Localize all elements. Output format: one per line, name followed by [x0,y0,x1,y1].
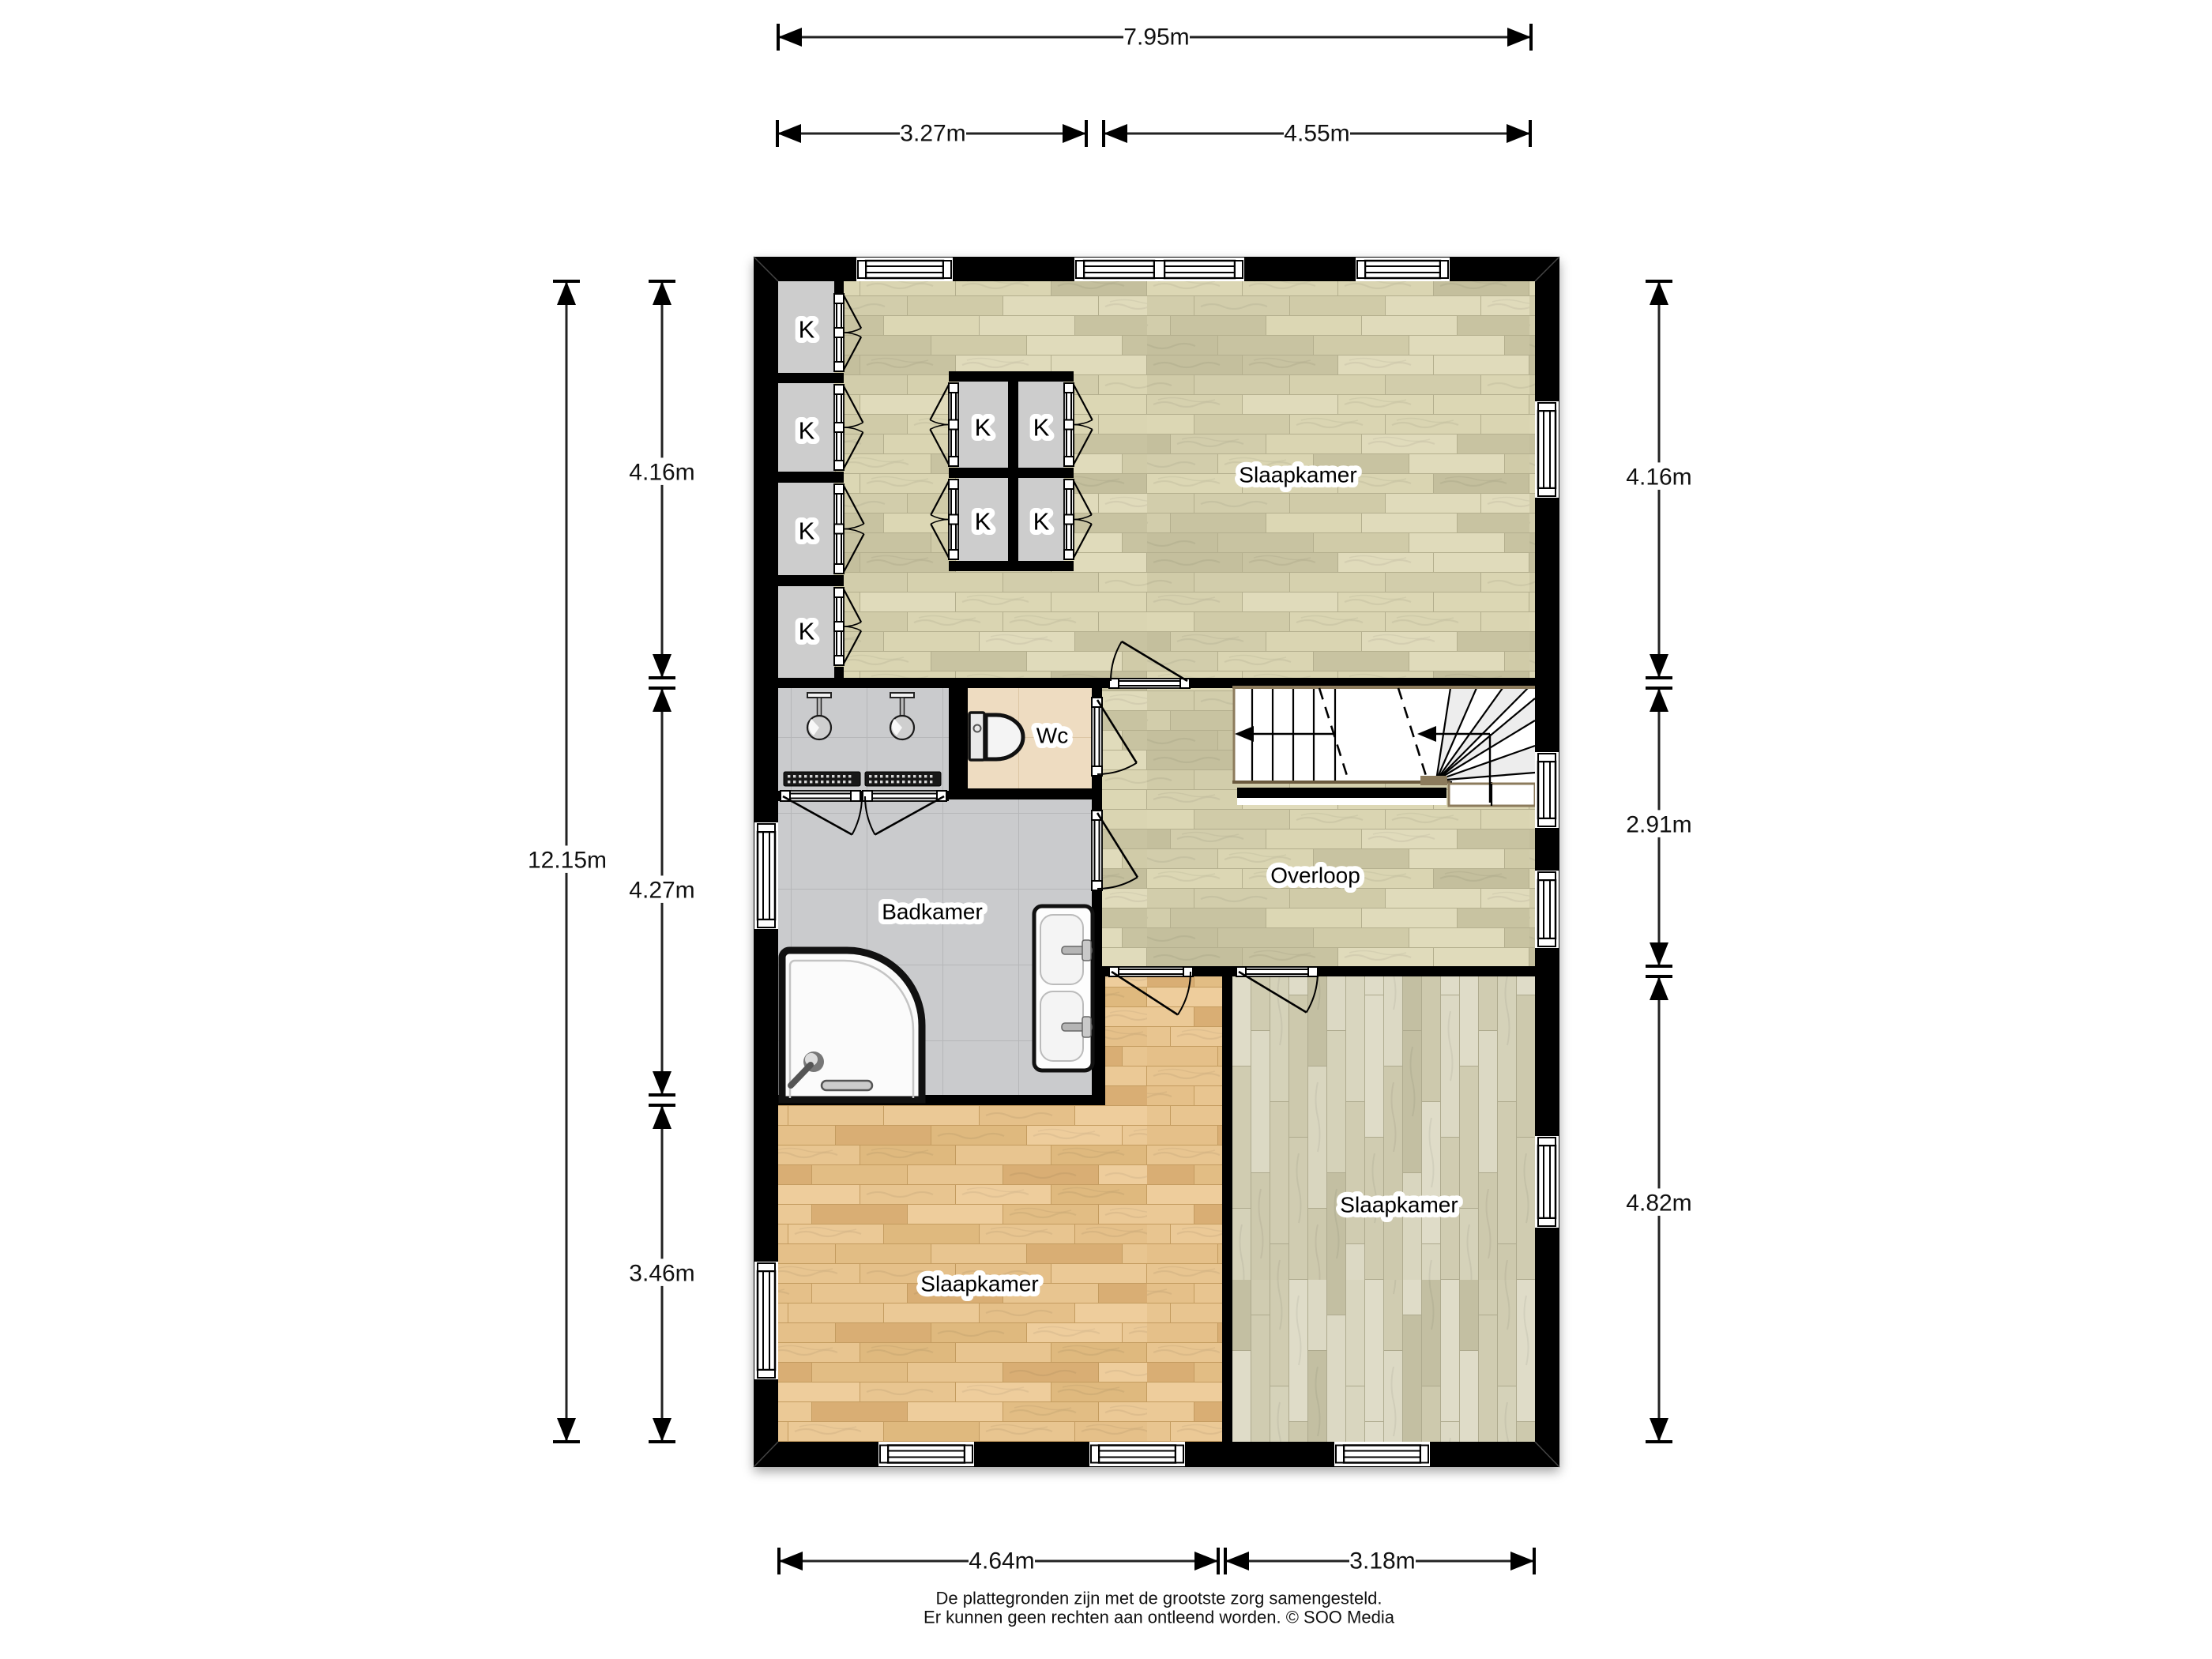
svg-text:Badkamer: Badkamer [882,900,983,924]
svg-text:K: K [799,618,815,645]
svg-text:4.16m: 4.16m [1626,465,1691,491]
svg-text:De plattegronden zijn met de g: De plattegronden zijn met de grootste zo… [936,1589,1382,1608]
svg-text:Slaapkamer: Slaapkamer [1340,1193,1458,1217]
svg-text:3.46m: 3.46m [629,1261,694,1287]
svg-text:4.64m: 4.64m [969,1548,1034,1574]
svg-text:7.95m: 7.95m [1123,24,1189,51]
svg-text:K: K [1033,508,1050,536]
svg-text:Slaapkamer: Slaapkamer [1239,463,1356,487]
svg-text:4.82m: 4.82m [1626,1191,1691,1217]
svg-text:K: K [1033,414,1050,442]
svg-text:Er kunnen geen rechten aan ont: Er kunnen geen rechten aan ontleend word… [924,1608,1395,1627]
svg-text:3.27m: 3.27m [900,121,965,147]
svg-text:K: K [975,414,991,442]
svg-text:K: K [975,508,991,536]
svg-text:3.18m: 3.18m [1349,1548,1415,1574]
svg-text:4.16m: 4.16m [629,460,694,486]
svg-text:K: K [799,316,815,344]
svg-text:K: K [799,417,815,445]
svg-text:2.91m: 2.91m [1626,812,1691,838]
svg-text:Slaapkamer: Slaapkamer [920,1272,1038,1296]
svg-text:4.27m: 4.27m [629,878,694,904]
svg-text:12.15m: 12.15m [528,848,607,874]
svg-text:Overloop: Overloop [1270,863,1360,888]
svg-text:Wc: Wc [1036,724,1068,748]
svg-text:4.55m: 4.55m [1284,121,1349,147]
svg-text:K: K [799,517,815,545]
